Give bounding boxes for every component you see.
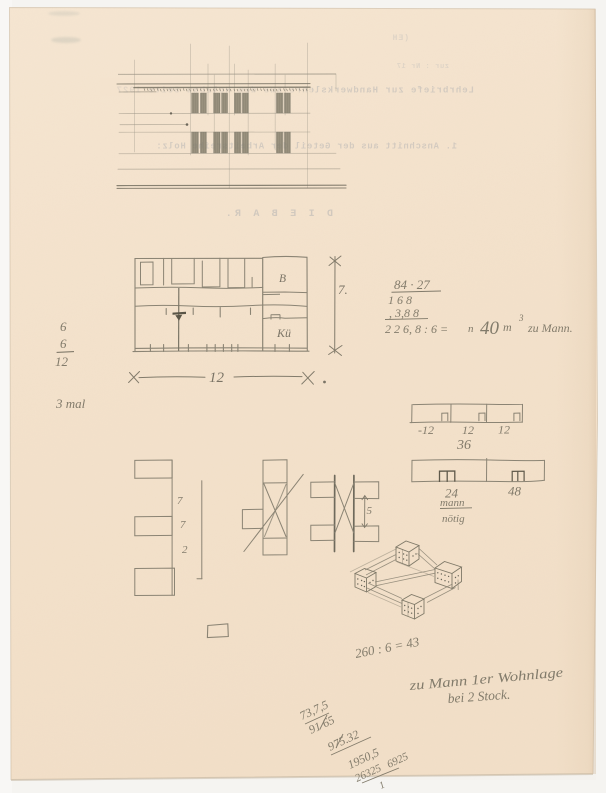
svg-text:12: 12	[462, 423, 474, 437]
svg-text:5: 5	[367, 505, 373, 517]
svg-text:48: 48	[508, 484, 522, 499]
svg-text:12: 12	[209, 370, 225, 386]
svg-text:1 6 8: 1 6 8	[388, 293, 412, 307]
svg-text:m: m	[503, 320, 512, 334]
svg-text:12: 12	[55, 354, 69, 369]
svg-text:nötig: nötig	[442, 513, 465, 525]
svg-text:36: 36	[456, 438, 471, 453]
svg-text:B: B	[279, 273, 286, 285]
svg-text:3: 3	[518, 313, 524, 323]
svg-text:2 2 6, 8 : 6 =: 2 2 6, 8 : 6 =	[385, 322, 448, 336]
svg-text:7: 7	[180, 519, 186, 531]
svg-text:zur : Nr 17: zur : Nr 17	[396, 63, 449, 71]
svg-text:(EH: (EH	[392, 34, 409, 43]
svg-text:6: 6	[60, 336, 67, 351]
svg-text:6: 6	[60, 319, 67, 334]
svg-text:Kü: Kü	[276, 326, 291, 340]
svg-text:2: 2	[182, 544, 188, 556]
svg-text:84 · 27: 84 · 27	[394, 277, 430, 292]
svg-text:12: 12	[498, 423, 510, 437]
svg-text:n: n	[468, 323, 474, 335]
svg-text:D I E B A R.: D I E B A R.	[223, 209, 333, 220]
svg-text:-12: -12	[418, 423, 434, 437]
svg-text:zu Mann.: zu Mann.	[527, 321, 573, 335]
svg-text:, 3,8 8: , 3,8 8	[389, 306, 419, 320]
svg-text:7: 7	[177, 495, 183, 507]
svg-text:40: 40	[480, 318, 500, 339]
svg-text:7.: 7.	[338, 282, 348, 297]
svg-text:3 mal: 3 mal	[55, 396, 86, 411]
svg-text:mann: mann	[440, 497, 465, 509]
